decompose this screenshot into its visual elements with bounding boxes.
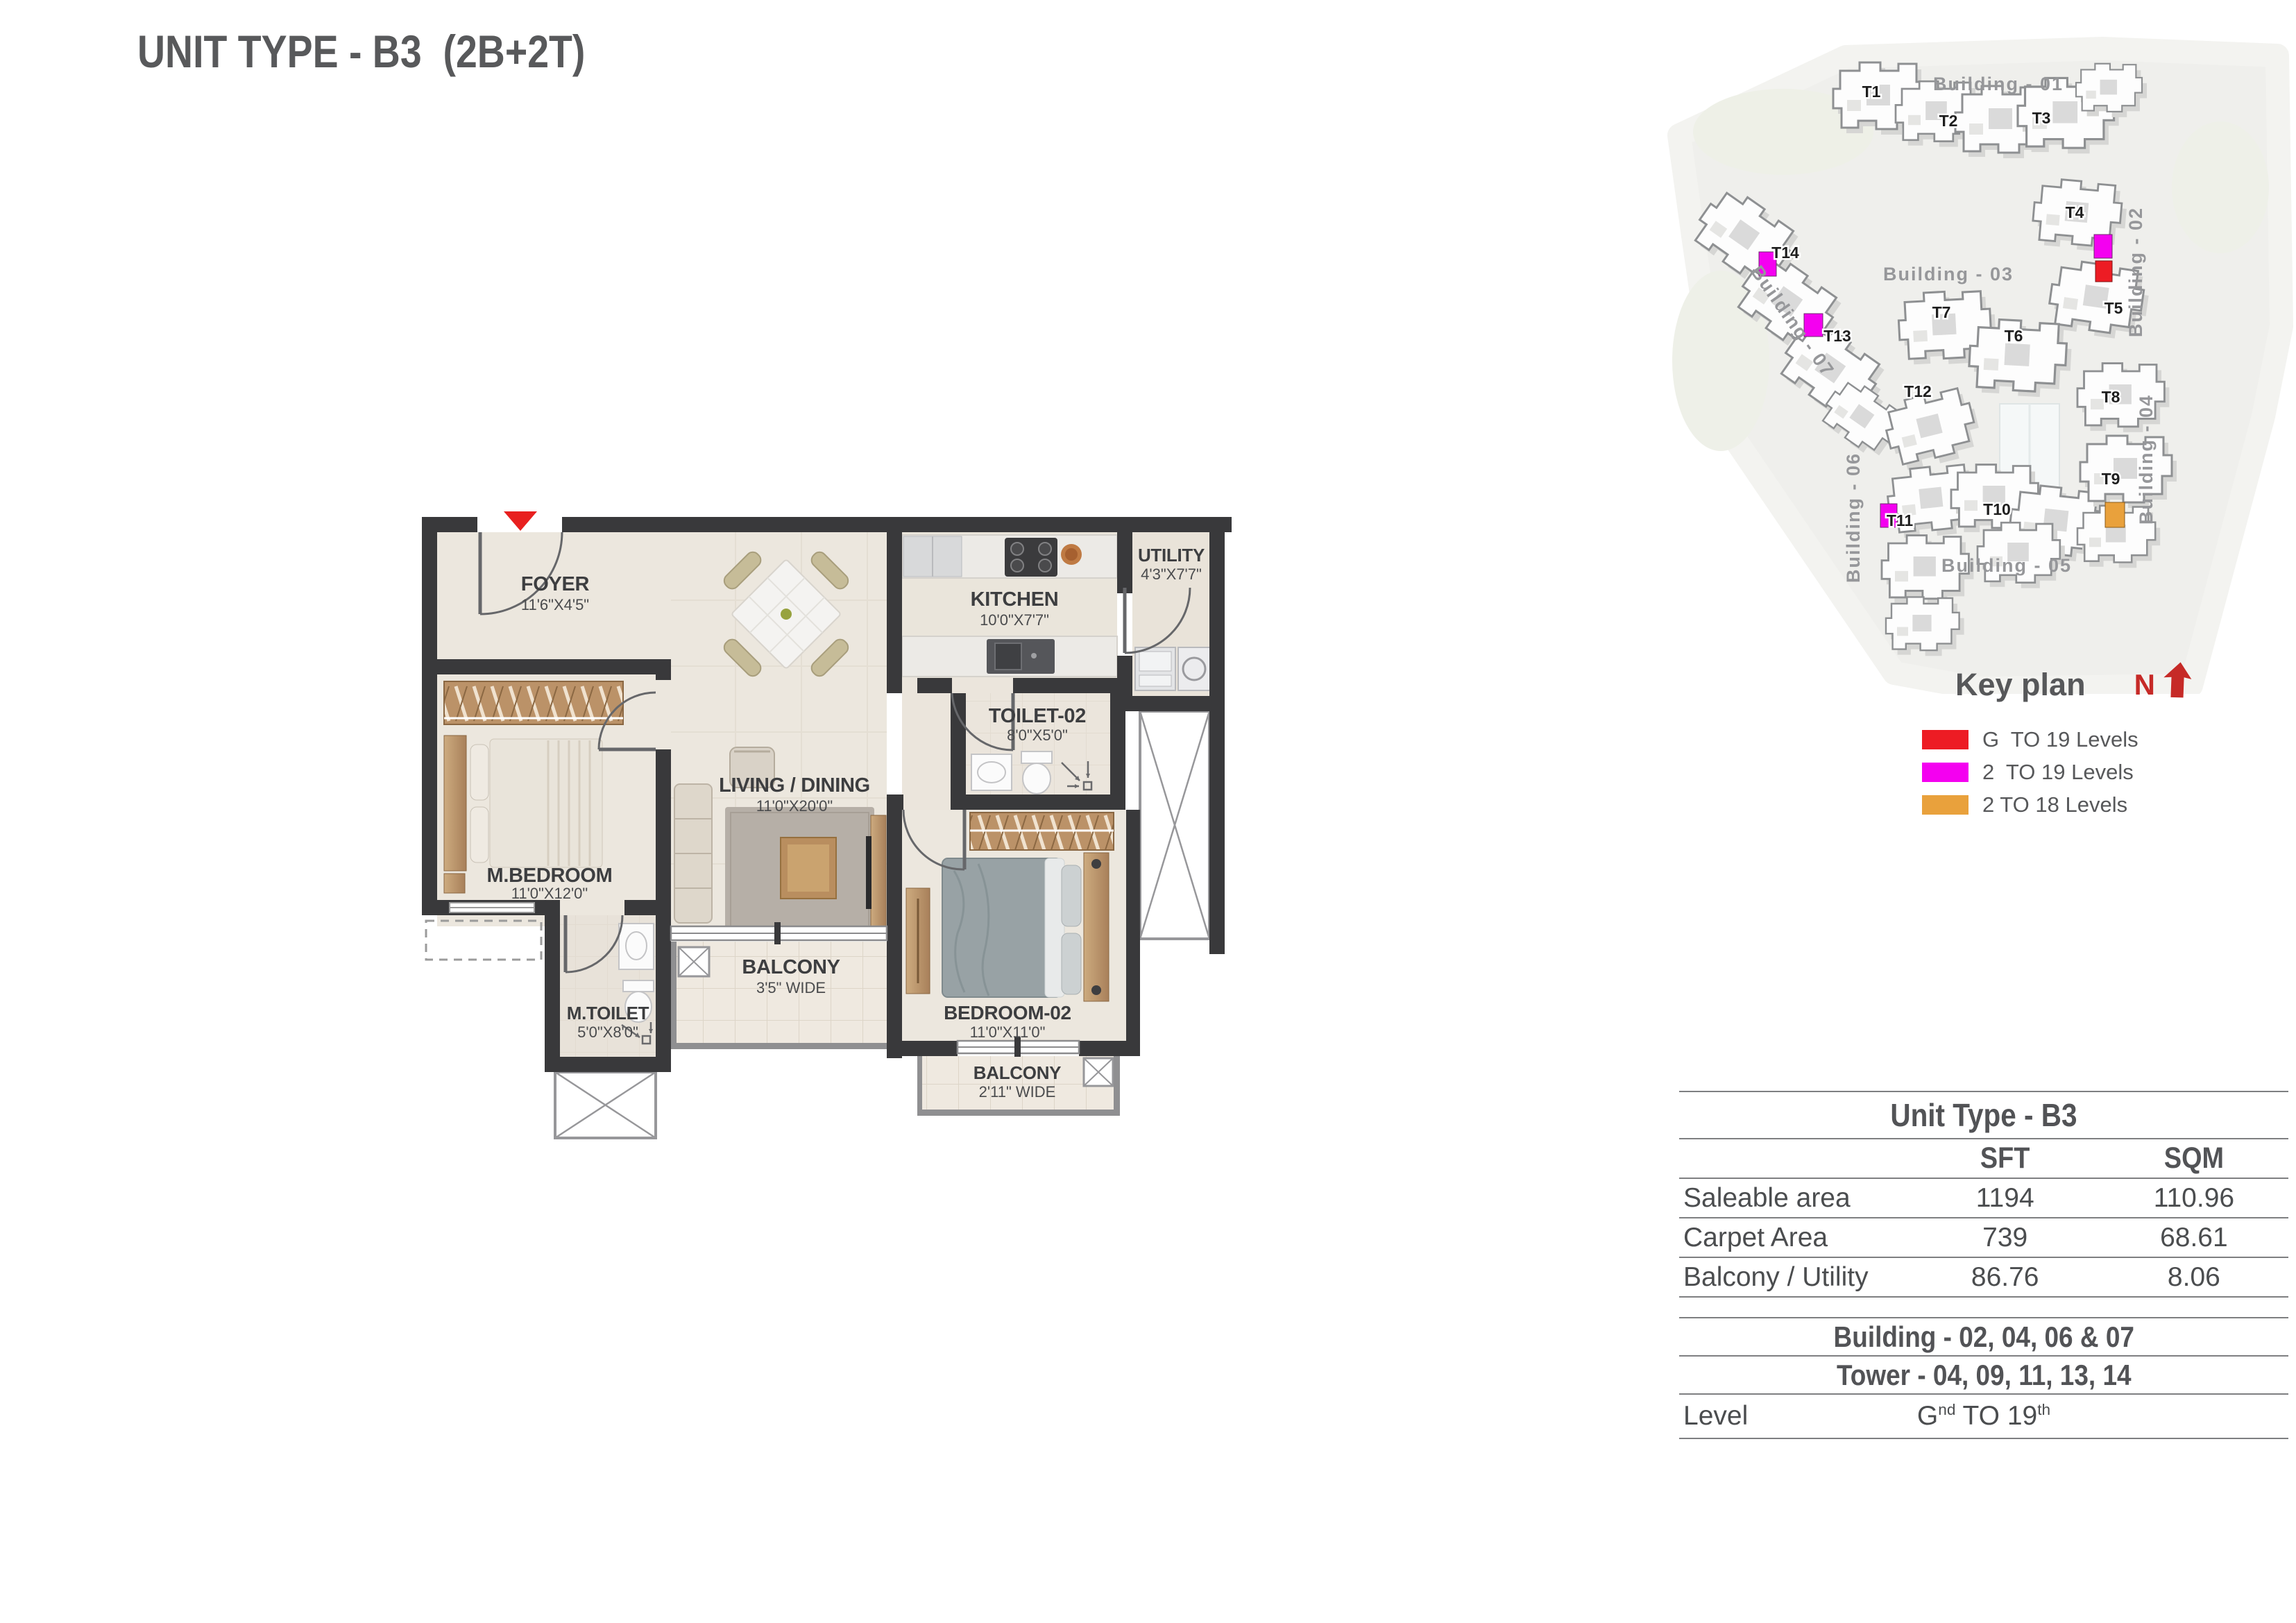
nightstand	[444, 874, 465, 893]
svg-text:11'0"X11'0": 11'0"X11'0"	[970, 1023, 1046, 1041]
svg-text:Building - 03: Building - 03	[1883, 264, 2014, 284]
highlight-magenta-t4	[2094, 235, 2112, 258]
table-header-row: SFT SQM	[1679, 1139, 2288, 1179]
north-label: N	[2134, 668, 2155, 702]
wc-bowl	[1023, 763, 1051, 794]
building-line: Building - 02, 04, 06 & 07	[1679, 1318, 2288, 1357]
col-header-sft: SFT	[1911, 1141, 2100, 1175]
pillow	[1062, 933, 1081, 994]
dashed-projection	[426, 921, 541, 960]
svg-text:T8: T8	[2102, 388, 2120, 406]
label-balcony2: BALCONY	[973, 1062, 1061, 1083]
svg-text:T7: T7	[1932, 303, 1951, 321]
floor-plan: FOYER 11'6"X4'5" LIVING / DINING 11'0"X2…	[416, 510, 1242, 1143]
highlight-red-t4	[2095, 261, 2112, 282]
wc-tank	[1021, 751, 1052, 763]
tower-line: Tower - 04, 09, 11, 13, 14	[1679, 1357, 2288, 1395]
pillow	[1062, 865, 1081, 926]
pillow	[470, 807, 488, 863]
svg-text:T2: T2	[1939, 112, 1958, 130]
key-plan-legend: G TO 19 Levels 2 TO 19 Levels 2 TO 18 Le…	[1922, 723, 2138, 821]
svg-text:Building - 02: Building - 02	[2125, 207, 2146, 337]
svg-text:5'0"X8'0": 5'0"X8'0"	[577, 1023, 638, 1041]
label-mbedroom: M.BEDROOM	[487, 865, 613, 887]
svg-text:T3: T3	[2032, 109, 2051, 127]
key-plan-header: Key plan N	[1955, 663, 2195, 706]
svg-text:T12: T12	[1904, 382, 1932, 400]
table-gap	[1679, 1298, 2288, 1318]
label-balcony1: BALCONY	[742, 956, 840, 978]
stove	[1005, 538, 1057, 577]
pillow	[470, 745, 488, 800]
svg-text:11'0"X20'0": 11'0"X20'0"	[756, 797, 833, 815]
area-table: Unit Type - B3 SFT SQM Saleable area 119…	[1679, 1091, 2288, 1439]
entry-arrow	[504, 511, 537, 531]
level-label: Level	[1683, 1395, 1748, 1438]
table-row-balcony-utility: Balcony / Utility 86.76 8.06	[1679, 1258, 2288, 1298]
svg-text:Building - 05: Building - 05	[1941, 555, 2072, 576]
label-foyer: FOYER	[521, 573, 590, 595]
bed	[490, 739, 602, 867]
legend-item: 2 TO 19 Levels	[1922, 756, 2138, 788]
svg-text:T11: T11	[1887, 511, 1914, 529]
svg-text:T6: T6	[2005, 327, 2023, 345]
table-title: Unit Type - B3	[1679, 1092, 2288, 1139]
label-utility: UTILITY	[1138, 545, 1205, 566]
svg-text:11'6"X4'5": 11'6"X4'5"	[521, 596, 589, 613]
level-row: Level Gnd TO 19th	[1679, 1395, 2288, 1439]
key-plan-map: T1 T2 T3 T4 T5 T6 T7 T8 T9 T10 T11 T12 T…	[1617, 28, 2296, 694]
svg-text:T5: T5	[2104, 299, 2123, 317]
key-plan-title: Key plan	[1955, 667, 2086, 703]
svg-text:3'5" WIDE: 3'5" WIDE	[756, 979, 826, 996]
svg-text:T10: T10	[1983, 500, 2011, 518]
svg-text:Building - 04: Building - 04	[2136, 394, 2157, 525]
label-mtoilet: M.TOILET	[567, 1003, 649, 1023]
label-bedroom2: BEDROOM-02	[944, 1002, 1071, 1023]
label-kitchen: KITCHEN	[971, 588, 1059, 611]
svg-text:T1: T1	[1862, 83, 1881, 101]
tv	[866, 836, 871, 909]
north-arrow-icon	[2159, 661, 2195, 703]
svg-text:2'11" WIDE: 2'11" WIDE	[979, 1083, 1056, 1101]
legend-item: G TO 19 Levels	[1922, 723, 2138, 756]
svg-text:Building - 06: Building - 06	[1843, 452, 1864, 583]
svg-text:Building - 01: Building - 01	[1933, 74, 2064, 94]
table-row-carpet: Carpet Area 739 68.61	[1679, 1218, 2288, 1258]
label-living: LIVING / DINING	[719, 774, 870, 797]
highlight-orange-t9	[2105, 502, 2125, 527]
legend-item: 2 TO 18 Levels	[1922, 788, 2138, 821]
svg-text:10'0"X7'7": 10'0"X7'7"	[980, 611, 1049, 629]
legend-swatch-magenta	[1922, 763, 1968, 782]
legend-swatch-red	[1922, 730, 1968, 749]
svg-text:T13: T13	[1823, 327, 1851, 345]
bed-headboard	[444, 736, 466, 871]
label-toilet2: TOILET-02	[989, 705, 1086, 727]
svg-text:T9: T9	[2102, 470, 2120, 488]
svg-text:4'3"X7'7": 4'3"X7'7"	[1141, 566, 1202, 583]
page-title: UNIT TYPE - B3 (2B+2T)	[137, 25, 585, 78]
tv-console	[871, 815, 886, 930]
wc-tank	[623, 980, 654, 992]
svg-text:8'0"X5'0": 8'0"X5'0"	[1007, 726, 1068, 744]
svg-text:T4: T4	[2066, 203, 2084, 221]
level-value: Gnd TO 19th	[1679, 1395, 2288, 1438]
legend-swatch-orange	[1922, 795, 1968, 815]
svg-text:T14: T14	[1771, 244, 1799, 262]
svg-text:11'0"X12'0": 11'0"X12'0"	[511, 885, 588, 902]
table-row-saleable: Saleable area 1194 110.96	[1679, 1179, 2288, 1218]
bed-headboard	[1084, 853, 1109, 1001]
col-header-sqm: SQM	[2100, 1141, 2288, 1175]
